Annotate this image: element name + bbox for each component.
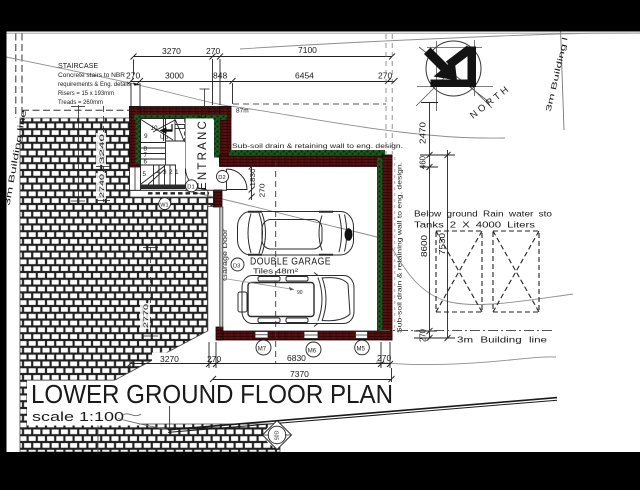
svg-text:3000: 3000 bbox=[165, 71, 184, 81]
svg-text:270: 270 bbox=[207, 354, 221, 364]
svg-text:D1: D1 bbox=[187, 185, 194, 191]
svg-text:Risers = 15 x 193mm: Risers = 15 x 193mm bbox=[58, 90, 114, 97]
svg-text:2: 2 bbox=[169, 169, 173, 176]
svg-text:460: 460 bbox=[419, 155, 428, 169]
svg-text:1: 1 bbox=[175, 169, 179, 176]
svg-text:Below ground Rain water sto: Below ground Rain water sto bbox=[414, 210, 553, 219]
svg-text:7370: 7370 bbox=[290, 369, 309, 379]
svg-text:Treads = 260mm: Treads = 260mm bbox=[58, 99, 103, 106]
svg-text:4: 4 bbox=[157, 169, 161, 176]
svg-text:3: 3 bbox=[163, 169, 167, 176]
svg-text:Up: Up bbox=[160, 134, 168, 141]
svg-text:6454: 6454 bbox=[295, 71, 314, 81]
svg-text:9: 9 bbox=[144, 133, 148, 140]
svg-text:3m Building line: 3m Building line bbox=[457, 335, 547, 345]
svg-text:87m: 87m bbox=[236, 108, 249, 115]
svg-text:270: 270 bbox=[260, 183, 267, 197]
svg-text:D3: D3 bbox=[233, 263, 240, 269]
svg-text:270: 270 bbox=[206, 46, 220, 56]
svg-text:2740: 2740 bbox=[99, 174, 106, 198]
svg-text:Sub-soil drain & retaining wal: Sub-soil drain & retaining wall to eng. … bbox=[398, 162, 404, 333]
svg-text:D2: D2 bbox=[218, 175, 225, 181]
svg-text:270: 270 bbox=[377, 353, 391, 363]
svg-text:10: 10 bbox=[151, 125, 159, 132]
svg-text:7100: 7100 bbox=[298, 45, 317, 55]
svg-text:3270: 3270 bbox=[160, 354, 179, 364]
svg-text:STAIRCASE: STAIRCASE bbox=[58, 61, 98, 70]
svg-text:3270: 3270 bbox=[162, 46, 181, 56]
svg-text:Concrete stairs to NBR: Concrete stairs to NBR bbox=[58, 72, 125, 79]
svg-text:848: 848 bbox=[213, 71, 227, 81]
svg-text:90: 90 bbox=[297, 290, 303, 296]
svg-text:G05: G05 bbox=[273, 431, 279, 441]
svg-text:M6: M6 bbox=[308, 348, 317, 354]
svg-text:270: 270 bbox=[126, 71, 140, 81]
svg-text:1830: 1830 bbox=[250, 168, 257, 186]
svg-text:5: 5 bbox=[143, 171, 147, 178]
svg-text:270: 270 bbox=[378, 71, 392, 81]
svg-text:Tanks 2 X 4000 Liters: Tanks 2 X 4000 Liters bbox=[414, 221, 535, 230]
svg-text:W1: W1 bbox=[160, 202, 168, 208]
svg-text:scale 1:100: scale 1:100 bbox=[32, 410, 124, 424]
svg-text:2770: 2770 bbox=[143, 304, 150, 328]
svg-text:LOWER GROUND FLOOR PLAN: LOWER GROUND FLOOR PLAN bbox=[31, 381, 393, 409]
svg-text:6: 6 bbox=[144, 159, 148, 166]
svg-text:8600: 8600 bbox=[420, 234, 429, 257]
svg-text:M7: M7 bbox=[258, 346, 267, 352]
svg-text:6830: 6830 bbox=[287, 353, 306, 363]
svg-text:2470: 2470 bbox=[419, 121, 428, 144]
svg-text:ENTRANCE: ENTRANCE bbox=[197, 109, 209, 190]
svg-text:requirements & Eng. details: requirements & Eng. details bbox=[58, 81, 132, 88]
svg-text:3240: 3240 bbox=[99, 134, 106, 164]
svg-text:M5: M5 bbox=[357, 346, 366, 352]
svg-text:Garage Door: Garage Door bbox=[222, 228, 229, 281]
svg-text:Sub-soil drain & retaining wal: Sub-soil drain & retaining wall to eng. … bbox=[232, 144, 403, 150]
svg-text:7530: 7530 bbox=[438, 232, 447, 255]
